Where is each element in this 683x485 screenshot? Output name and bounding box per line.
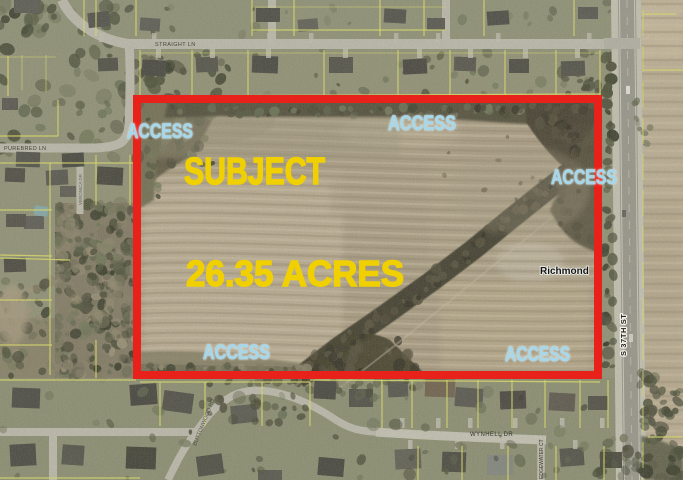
svg-text:Richmond: Richmond <box>540 266 589 277</box>
svg-text:ACCESS: ACCESS <box>551 166 617 189</box>
svg-text:STRAIGHT LN: STRAIGHT LN <box>155 42 196 48</box>
svg-text:VERONICA DR: VERONICA DR <box>78 173 83 205</box>
svg-text:ACCESS: ACCESS <box>203 341 270 364</box>
svg-text:WYNHELL DR: WYNHELL DR <box>470 432 513 438</box>
svg-text:SUBJECT: SUBJECT <box>184 151 325 193</box>
svg-text:ACCESS: ACCESS <box>388 112 456 135</box>
svg-text:PUREBRED LN: PUREBRED LN <box>4 146 46 152</box>
svg-text:S 37TH ST: S 37TH ST <box>619 314 628 357</box>
svg-text:26.35 ACRES: 26.35 ACRES <box>186 253 404 294</box>
svg-text:EDGEWATER CT: EDGEWATER CT <box>539 439 545 479</box>
svg-text:ACCESS: ACCESS <box>505 343 570 366</box>
svg-text:ACCESS: ACCESS <box>127 120 193 143</box>
